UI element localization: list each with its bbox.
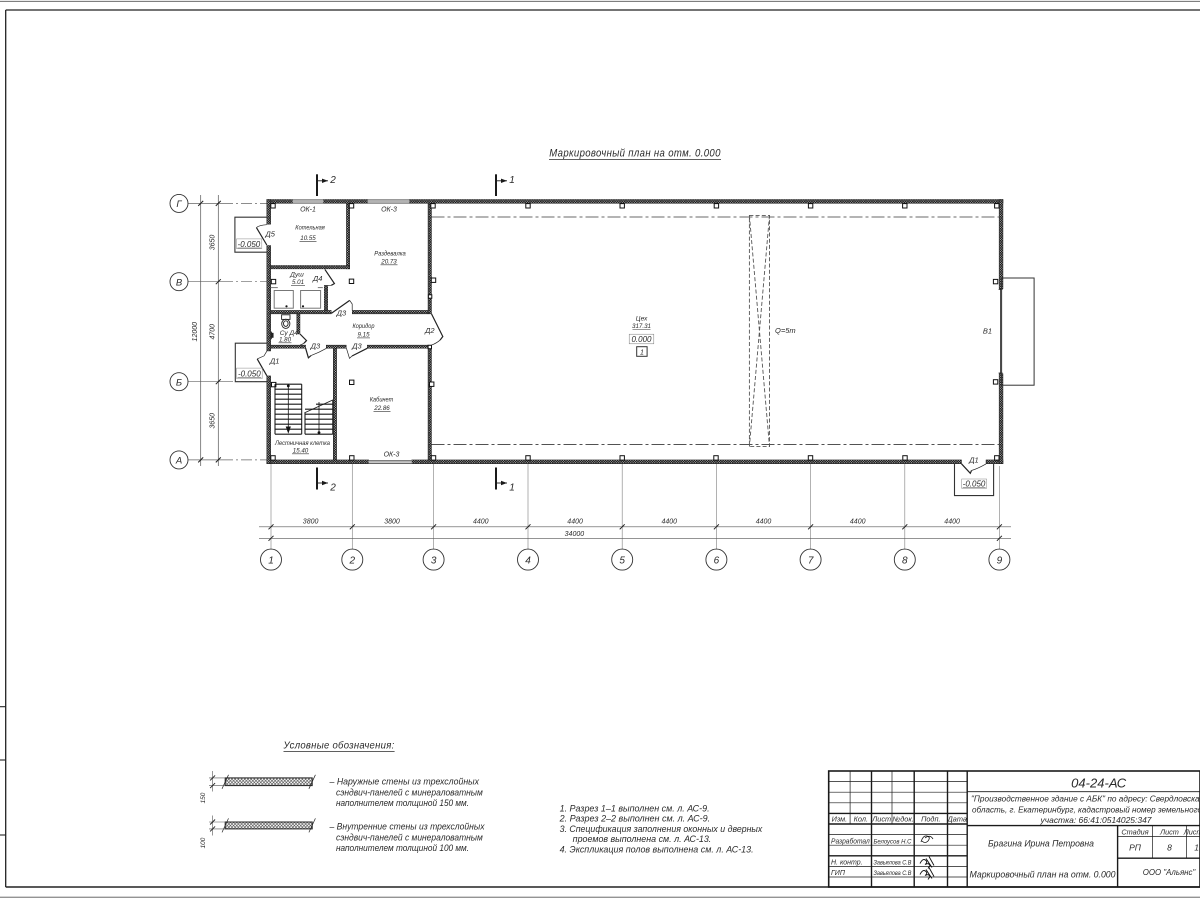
svg-text:12000: 12000 (192, 322, 199, 342)
svg-text:Д4: Д4 (312, 274, 322, 283)
svg-text:20.73: 20.73 (380, 258, 397, 265)
svg-text:1: 1 (640, 349, 644, 356)
svg-text:8: 8 (1167, 843, 1172, 853)
svg-text:Изм.: Изм. (832, 815, 848, 824)
svg-text:1.80: 1.80 (279, 336, 292, 343)
svg-text:"Производственное здание с АБК: "Производственное здание с АБК" по адрес… (971, 794, 1200, 804)
svg-text:1: 1 (268, 556, 274, 567)
svg-text:Д1: Д1 (968, 456, 978, 465)
svg-text:3650: 3650 (210, 235, 217, 251)
svg-text:9.15: 9.15 (357, 331, 370, 338)
svg-text:9: 9 (997, 556, 1003, 567)
svg-text:Цех: Цех (636, 315, 648, 322)
svg-text:сэндвич-панелей с минераловатн: сэндвич-панелей с минераловатным (336, 832, 483, 842)
svg-text:3. Спецификация заполнения око: 3. Спецификация заполнения оконных и две… (560, 824, 763, 834)
svg-text:6: 6 (714, 556, 720, 567)
svg-text:Раздевалка: Раздевалка (374, 250, 406, 258)
svg-text:Коридор: Коридор (353, 322, 375, 330)
svg-text:4400: 4400 (756, 519, 772, 526)
svg-text:ООО "Альянс": ООО "Альянс" (1143, 867, 1196, 877)
svg-text:Кабинет: Кабинет (370, 396, 394, 404)
svg-text:А: А (175, 456, 182, 467)
svg-text:2: 2 (329, 175, 336, 186)
svg-text:Лестничная клетка: Лестничная клетка (274, 440, 330, 447)
svg-text:8: 8 (902, 556, 908, 567)
svg-text:Б: Б (176, 377, 182, 388)
svg-text:7: 7 (808, 556, 814, 567)
svg-text:Маркировочный план на отм. 0.0: Маркировочный план на отм. 0.000 (549, 148, 721, 160)
svg-text:-0.050: -0.050 (238, 370, 261, 379)
svg-text:ОК-3: ОК-3 (384, 452, 400, 459)
svg-text:– Внутренние стены из трехслой: – Внутренние стены из трехслойных (329, 822, 486, 832)
svg-text:Душ: Душ (289, 272, 304, 279)
svg-text:Условные обозначения:: Условные обозначения: (283, 740, 395, 752)
svg-text:4400: 4400 (944, 519, 960, 526)
svg-text:Завьялова С.В: Завьялова С.В (874, 861, 912, 867)
svg-text:ГИП: ГИП (831, 870, 846, 877)
svg-text:100: 100 (200, 837, 207, 848)
svg-text:4: 4 (525, 556, 531, 567)
svg-text:04-24-АС: 04-24-АС (1071, 777, 1127, 791)
svg-text:5.01: 5.01 (292, 279, 304, 286)
svg-text:13: 13 (1194, 843, 1200, 853)
svg-text:наполнителем толщиной 150 мм.: наполнителем толщиной 150 мм. (336, 798, 469, 808)
svg-text:3800: 3800 (384, 519, 400, 526)
svg-text:15.40: 15.40 (293, 447, 309, 454)
svg-text:проемов выполнена см. л. АС-13: проемов выполнена см. л. АС-13. (573, 834, 712, 844)
svg-text:сэндвич-панелей с минераловатн: сэндвич-панелей с минераловатным (336, 787, 483, 797)
svg-text:Дата: Дата (947, 815, 967, 824)
svg-text:Д2: Д2 (424, 326, 435, 335)
svg-text:Маркировочный план на отм. 0.0: Маркировочный план на отм. 0.000 (970, 870, 1116, 880)
svg-text:Листов: Листов (1183, 827, 1200, 836)
svg-text:Брагина Ирина Петровна: Брагина Ирина Петровна (988, 839, 1094, 849)
svg-text:область, г. Екатеринбург, када: область, г. Екатеринбург, кадастровый но… (972, 804, 1200, 814)
svg-text:5: 5 (619, 556, 625, 567)
svg-text:2: 2 (349, 556, 356, 567)
svg-text:Подп.: Подп. (921, 815, 940, 824)
svg-text:317.31: 317.31 (632, 323, 651, 330)
svg-text:4. Экспликация полов выполнена: 4. Экспликация полов выполнена см. л. АС… (560, 844, 754, 854)
svg-text:150: 150 (200, 792, 207, 803)
svg-text:4400: 4400 (473, 519, 489, 526)
svg-text:ОК-3: ОК-3 (381, 207, 397, 214)
svg-text:Лист: Лист (871, 815, 891, 824)
svg-text:-0.050: -0.050 (238, 240, 261, 249)
svg-text:Д1: Д1 (269, 357, 279, 366)
svg-text:Н. контр.: Н. контр. (831, 860, 863, 867)
svg-text:участка: 66:41:0514025:347: участка: 66:41:0514025:347 (1040, 815, 1153, 825)
svg-text:ОК-1: ОК-1 (300, 207, 316, 214)
svg-text:Лист: Лист (1159, 827, 1179, 836)
svg-text:Белоусов Н.С: Белоусов Н.С (874, 840, 913, 846)
svg-text:2. Разрез 2–2 выполнен см. л.: 2. Разрез 2–2 выполнен см. л. АС-9. (559, 814, 711, 824)
svg-text:Разработал: Разработал (831, 838, 870, 846)
svg-text:Котельная: Котельная (295, 225, 325, 232)
svg-text:Кол.: Кол. (854, 815, 868, 824)
svg-text:Завьялова С.В: Завьялова С.В (874, 871, 912, 877)
svg-text:4700: 4700 (210, 324, 217, 340)
svg-text:4400: 4400 (662, 519, 678, 526)
svg-text:Д3: Д3 (336, 308, 347, 317)
svg-text:В: В (176, 277, 183, 288)
svg-text:3: 3 (431, 556, 437, 567)
svg-text:1. Разрез 1–1 выполнен см. л.: 1. Разрез 1–1 выполнен см. л. АС-9. (560, 804, 710, 814)
svg-text:1: 1 (509, 483, 515, 494)
svg-text:– Наружные стены из трехслойны: – Наружные стены из трехслойных (329, 777, 480, 787)
svg-text:22.86: 22.86 (373, 405, 390, 412)
svg-text:0.000: 0.000 (631, 335, 652, 344)
svg-text:РП: РП (1129, 843, 1142, 853)
svg-text:наполнителем толщиной 100 мм.: наполнителем толщиной 100 мм. (336, 843, 469, 853)
svg-text:34000: 34000 (565, 531, 585, 538)
svg-text:Q=5т: Q=5т (775, 326, 796, 335)
svg-text:Стадия: Стадия (1121, 827, 1148, 836)
svg-text:10.55: 10.55 (300, 235, 316, 242)
svg-text:Д5: Д5 (265, 229, 276, 238)
svg-text:Д3: Д3 (310, 341, 321, 350)
svg-text:3800: 3800 (303, 519, 319, 526)
svg-text:Г: Г (176, 199, 182, 210)
svg-text:4400: 4400 (850, 519, 866, 526)
svg-text:4400: 4400 (567, 519, 583, 526)
svg-text:Д3: Д3 (351, 341, 362, 350)
svg-text:№док.: №док. (892, 815, 913, 824)
svg-text:2: 2 (329, 483, 336, 494)
svg-text:1: 1 (509, 175, 515, 186)
svg-text:В1: В1 (983, 327, 992, 336)
svg-text:3650: 3650 (210, 413, 217, 429)
